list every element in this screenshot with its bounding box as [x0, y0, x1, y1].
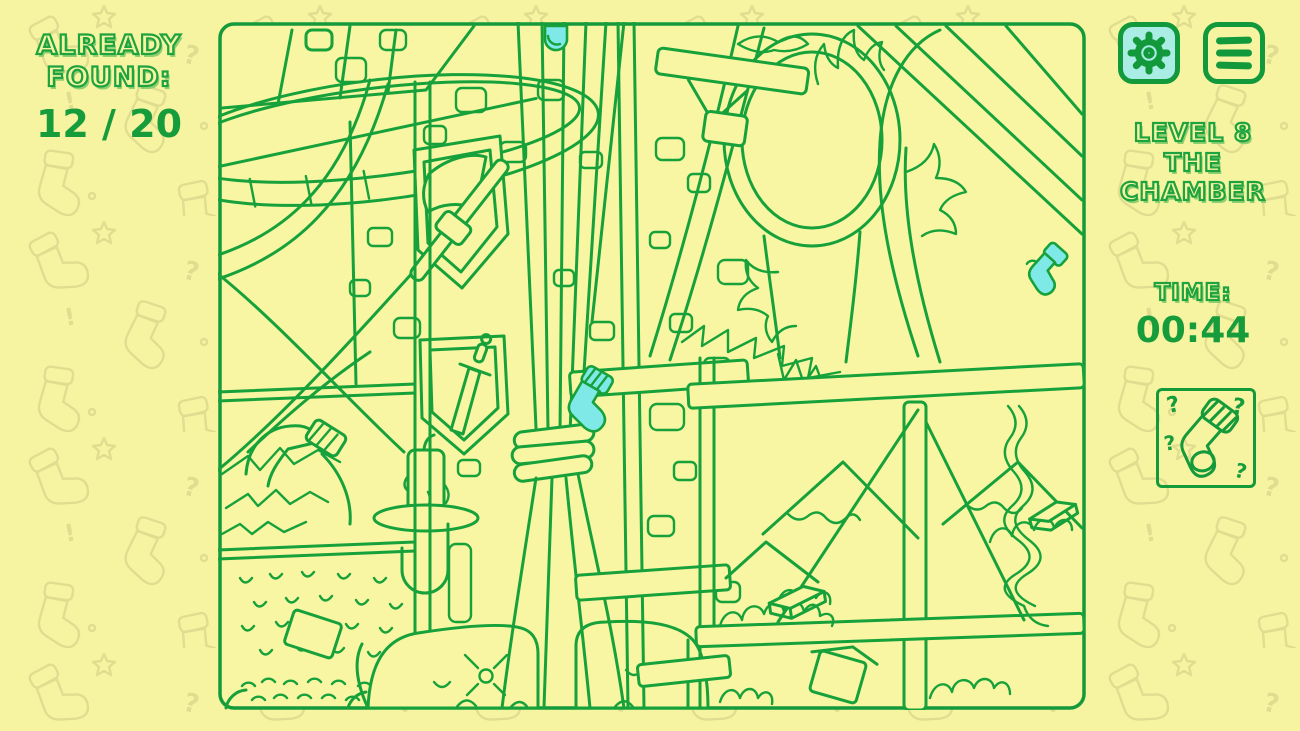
right-panel: LEVEL 8 THE CHAMBER TIME: 00:44 ? ? ? ?: [1086, 0, 1300, 731]
level-title-line3: CHAMBER: [1086, 177, 1300, 207]
found-label-line2: FOUND:: [0, 62, 218, 94]
found-sock-highlight-1: [545, 26, 567, 50]
settings-button[interactable]: [1118, 22, 1180, 84]
menu-icon: [1214, 35, 1254, 71]
mystery-sock-icon: [1159, 391, 1253, 485]
gear-icon: [1127, 31, 1171, 75]
time-label: TIME:: [1086, 280, 1300, 307]
scene-illustration[interactable]: [218, 22, 1086, 710]
curtain-knot: [511, 423, 594, 482]
menu-button[interactable]: [1203, 22, 1265, 84]
found-label: ALREADY FOUND:: [0, 30, 218, 94]
found-label-line1: ALREADY: [0, 30, 218, 62]
found-counter: 12 / 20: [0, 102, 218, 146]
time-value: 00:44: [1086, 310, 1300, 351]
level-title-line1: LEVEL 8: [1086, 118, 1300, 148]
level-title-line2: THE: [1086, 148, 1300, 178]
level-title: LEVEL 8 THE CHAMBER: [1086, 118, 1300, 207]
left-panel: ALREADY FOUND: 12 / 20: [0, 0, 218, 146]
hint-box[interactable]: ? ? ? ?: [1156, 388, 1256, 488]
